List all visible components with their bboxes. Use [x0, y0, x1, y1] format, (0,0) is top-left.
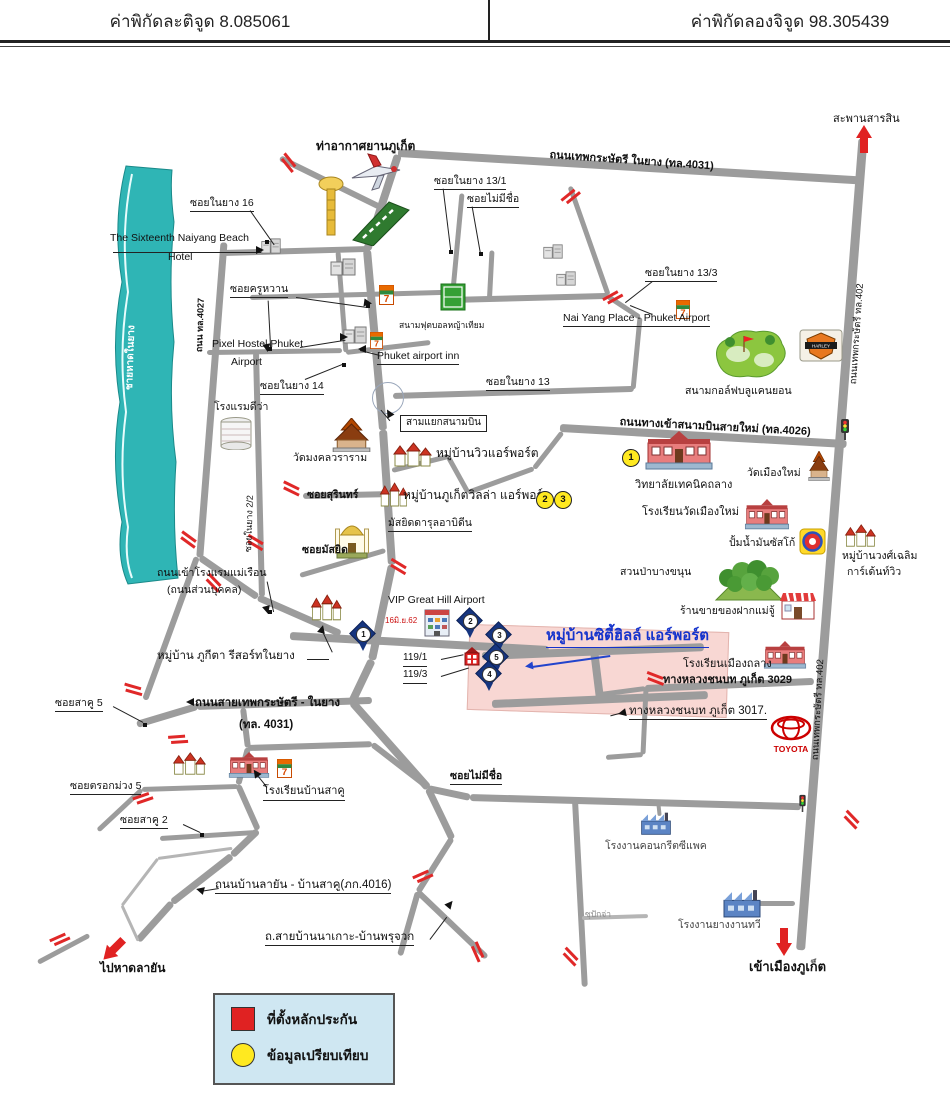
- leader-line: [441, 654, 464, 660]
- road-3017: ทางหลวงชนบท ภูเก็ต 3017.: [629, 704, 767, 720]
- muban-phuket-villa-airport: หมู่บ้านภูเก็ตวิลล่า แอร์พอร์ต: [403, 488, 551, 503]
- coordinate-header: ค่าพิกัดละติจูด 8.085061 ค่าพิกัดลองจิจู…: [0, 0, 950, 46]
- golf-course-icon: [708, 324, 792, 384]
- comparison-data-icon: [231, 1043, 255, 1067]
- muban-city-hill-airport: หมู่บ้านซิตี้ฮิลล์ แอร์พอร์ต: [546, 627, 709, 648]
- svg-text:7: 7: [282, 767, 288, 778]
- toyota-logo-icon: TOYOTA: [770, 715, 812, 755]
- airport-name: ท่าอากาศยานภูเก็ต: [316, 139, 415, 154]
- junction-dot: [449, 250, 453, 254]
- control-tower-icon: [318, 176, 344, 238]
- road-segment: [160, 830, 255, 841]
- vip-great-hill-icon: [422, 606, 452, 638]
- school-ban-saku: โรงเรียนบ้านสาคู: [263, 785, 345, 801]
- phukita-houses-icon: [310, 593, 342, 623]
- soi-kru-waan: ซอยครูหวาน: [230, 283, 288, 298]
- naiyang-place: Nai Yang Place - Phuket Airport: [563, 312, 710, 327]
- seven-eleven-icon: 7: [277, 759, 292, 778]
- road-segment: [142, 783, 238, 791]
- cpac-concrete-factory: โรงงานคอนกรีตซีแพค: [605, 840, 707, 853]
- su-pak-ja: ซุปักจ่า: [585, 909, 611, 920]
- souvenir-shop-icon: [779, 589, 817, 622]
- arrowhead: [524, 661, 533, 670]
- legend-collateral-label: ที่ตั้งหลักประกัน: [267, 1008, 357, 1030]
- railway-crossing-icon: [560, 946, 579, 968]
- site-pin-3: 3: [487, 623, 511, 647]
- site-pin-4: 4: [477, 662, 501, 686]
- svg-text:TOYOTA: TOYOTA: [774, 744, 809, 754]
- leader-line: [307, 659, 329, 660]
- naiyang-beach: ชายหาดในยาง: [124, 325, 139, 390]
- cpac-factory-icon: [640, 811, 672, 836]
- road-segment: [196, 242, 227, 558]
- soi-naiyang-2-2: ซอยในยาง 2/2: [243, 495, 256, 552]
- arrowhead: [186, 698, 194, 706]
- leader-line: [442, 189, 451, 251]
- susco-gas-station: ปั้มน้ำมันซัสโก้: [729, 537, 795, 550]
- soi-naiyang-14: ซอยในยาง 14: [260, 380, 324, 395]
- soi-surin: ซอยสุรินทร์: [307, 489, 358, 502]
- soi-saku-5: ซอยสาคู 5: [55, 697, 103, 712]
- soi-naiyang-16: ซอยในยาง 16: [190, 197, 254, 212]
- railway-crossing-icon: [167, 729, 188, 752]
- building-cluster-icon: [556, 271, 576, 286]
- svg-text:7: 7: [384, 294, 390, 305]
- road-4031-west-2: (ทล. 4031): [239, 718, 293, 732]
- soi-trok-muang-5: ซอยตรอกม่วง 5: [70, 780, 141, 795]
- leader-line: [625, 281, 653, 303]
- muban-wong-chaloem-2: การ์เด้นท์วิว: [847, 566, 901, 579]
- railway-crossing-icon: [647, 669, 663, 688]
- road-segment: [487, 250, 495, 300]
- red-date-note: 16มิ.ย.62: [385, 616, 417, 626]
- susco-logo-icon: [799, 528, 826, 555]
- soi-naiyang-13: ซอยในยาง 13: [486, 376, 550, 391]
- leader-line: [113, 706, 144, 723]
- leader-line: [300, 340, 346, 348]
- house-no-119-1: 119/1: [403, 652, 427, 667]
- road-segment: [135, 900, 174, 943]
- road-segment: [452, 293, 608, 303]
- railway-crossing-icon: [284, 480, 298, 498]
- vip-great-hill-airport: VIP Great Hill Airport: [388, 594, 485, 607]
- building-cluster-icon: [330, 258, 356, 276]
- mae-ruen-road-2: (ถนนส่วนบุคคล): [167, 584, 241, 597]
- comparison-marker-2: 2: [536, 491, 554, 509]
- school-wat-muang-mai: โรงเรียนวัดเมืองใหม่: [642, 506, 739, 520]
- thalang-technical-college: วิทยาลัยเทคนิคถลาง: [635, 479, 732, 493]
- muban-phukita-resort: หมู่บ้าน ภูกีตา รีสอร์ทในยาง: [157, 649, 295, 663]
- road-402-lower: ถนนเทพกระษัตรี ทล.402: [810, 659, 827, 761]
- header-rule-thick: [0, 40, 950, 43]
- arrowhead: [195, 885, 205, 895]
- road-segment: [121, 857, 159, 906]
- soi-masjid: ซอยมัสยิด: [302, 544, 348, 557]
- junction-dot: [200, 833, 204, 837]
- road-segment: [368, 564, 396, 661]
- leader-line: [429, 917, 447, 940]
- house-no-119-3: 119/3: [403, 669, 427, 684]
- wat-muang-mai: วัดเมืองใหม่: [747, 467, 801, 480]
- leader-line: [441, 668, 469, 678]
- seven-eleven-icon: 7: [370, 332, 383, 349]
- road-segment: [121, 904, 140, 941]
- to-phuket-town: เข้าเมืองภูเก็ต: [749, 959, 826, 975]
- masjid-darul-abidin: มัสยิดดารุลอาบิดีน: [388, 517, 472, 532]
- muban-view-airport: หมู่บ้านวิวแอร์พอร์ต: [436, 446, 539, 461]
- road-4031-west-1: ถนนสายเทพกระษัตรี - ในยาง: [195, 696, 340, 710]
- ban-saku-school-icon: [228, 752, 270, 780]
- road-segment: [158, 846, 233, 859]
- football-field: สนามฟุตบอลหญ้าเทียม: [399, 320, 484, 331]
- road-segment: [397, 891, 421, 956]
- runway-icon: [345, 198, 415, 246]
- road-ban-layan-saku-4016: ถนนบ้านลายัน - บ้านสาคู(ภก.4016): [215, 878, 391, 894]
- railway-crossing-icon: [841, 809, 860, 831]
- leader-line: [305, 363, 344, 380]
- arrow-to-phuket-town: [776, 926, 792, 956]
- longitude-value: ค่าพิกัดลองจิจูด 98.305439: [645, 8, 935, 35]
- svg-text:7: 7: [374, 339, 379, 349]
- leader-line: [296, 297, 367, 308]
- wong-chaloem-houses-icon: [844, 523, 876, 549]
- legend-box: ที่ตั้งหลักประกัน ข้อมูลเปรียบเทียบ: [213, 993, 395, 1085]
- ngan-thawee-rubber-factory: โรงงานยางงานทวี: [678, 919, 761, 932]
- railway-crossing-icon: [125, 680, 142, 700]
- comparison-marker-3: 3: [554, 491, 572, 509]
- wat-mongkhol-icon: [323, 418, 380, 452]
- sixteenth-hotel-1: The Sixteenth Naiyang Beach: [110, 232, 249, 245]
- site-pin-2: 2: [458, 609, 482, 633]
- soi-no-name-south: ซอยไม่มีชื่อ: [450, 770, 502, 785]
- pixel-hostel-1: Pixel Hostel Phuket: [212, 338, 303, 351]
- airport-junction: สามแยกสนามบิน: [400, 415, 487, 432]
- pixel-hostel-2: Airport: [231, 356, 262, 369]
- road-segment: [470, 794, 801, 810]
- road-segment: [224, 246, 368, 256]
- traffic-light-icon: [797, 794, 808, 812]
- comparison-marker-1: 1: [622, 449, 640, 467]
- bang-khanun-forest-park: สวนป่าบางขนุน: [620, 566, 691, 579]
- forest-park-icon: [710, 556, 788, 603]
- football-field-icon: [440, 283, 466, 311]
- arrowhead: [358, 345, 366, 353]
- wat-mongkhol-wararam: วัดมงคลวราราม: [293, 452, 367, 465]
- junction-dot: [143, 723, 147, 727]
- leader-line: [183, 824, 201, 833]
- junction-dot: [479, 252, 483, 256]
- road-segment: [631, 317, 643, 389]
- blue-canyon-golf: สนามกอล์ฟบลูแคนยอน: [685, 385, 792, 398]
- soi-saku-2: ซอยสาคู 2: [120, 814, 168, 829]
- arrowhead: [256, 246, 264, 254]
- legend-comparison-label: ข้อมูลเปรียบเทียบ: [267, 1044, 368, 1066]
- railway-crossing-icon: [390, 557, 406, 576]
- arrowhead: [363, 298, 372, 307]
- road-segment: [248, 741, 372, 751]
- arrowhead: [617, 708, 626, 717]
- header-rule-thin: [0, 46, 950, 47]
- airplane-icon: [348, 150, 403, 195]
- phuket-airport-inn: Phuket airport inn: [377, 350, 459, 365]
- site-pin-1: 1: [351, 622, 375, 646]
- road-4027: ถนน ทล.4027: [194, 298, 207, 353]
- thalang-college-icon: [644, 431, 714, 473]
- arrowhead: [444, 898, 455, 909]
- collateral-location-icon: [231, 1007, 255, 1031]
- soi-naiyang-13-1: ซอยในยาง 13/1: [434, 175, 506, 190]
- header-divider: [488, 0, 490, 40]
- junction-dot: [342, 363, 346, 367]
- road-ban-na-ko: ถ.สายบ้านนาเกาะ-บ้านพรุจวก: [265, 930, 414, 946]
- naiyang-beach-icon: [98, 162, 183, 587]
- junction-dot: [265, 240, 269, 244]
- railway-crossing-icon: [180, 530, 197, 550]
- arrowhead: [340, 333, 348, 341]
- road-3029: ทางหลวงชนบท ภูเก็ต 3029: [663, 674, 792, 688]
- view-airport-houses-icon: [392, 441, 432, 469]
- svg-text:HARLEY: HARLEY: [812, 344, 830, 349]
- dewa-hotel: โรงแรมดีว่า: [214, 401, 268, 414]
- wat-muang-mai-school-icon: [744, 499, 790, 532]
- arrowhead: [317, 624, 327, 634]
- saku-houses-icon: [172, 751, 206, 777]
- latitude-value: ค่าพิกัดละติจูด 8.085061: [55, 8, 345, 35]
- seven-eleven-icon: 7: [379, 285, 394, 305]
- arrow-to-sarasin-bridge: [856, 125, 872, 155]
- soi-no-name-north: ซอยไม่มีชื่อ: [467, 193, 519, 208]
- soi-naiyang-13-3: ซอยในยาง 13/3: [645, 267, 717, 282]
- muban-wong-chaloem-1: หมู่บ้านวงศ์เฉลิม: [842, 550, 917, 563]
- wat-muang-mai-icon: [803, 451, 835, 481]
- mae-ruen-road-1: ถนนเข้าโรงแรมแม่เรือน: [157, 567, 267, 580]
- mae-ju-souvenir-shop: ร้านขายของฝากแม่จู้: [680, 605, 775, 618]
- school-muang-thalang: โรงเรียนเมืองถลาง: [683, 658, 772, 672]
- leader-line: [471, 207, 481, 254]
- harley-davidson-icon: HARLEY: [799, 329, 843, 362]
- thawee-factory-icon: [722, 888, 762, 919]
- appraisal-map-page: ค่าพิกัดละติจูด 8.085061 ค่าพิกัดลองจิจู…: [0, 0, 950, 1096]
- road-segment: [235, 784, 260, 831]
- sixteenth-hotel-2: Hotel: [168, 251, 193, 264]
- building-cluster-icon: [543, 244, 563, 259]
- dewa-hotel-icon: [216, 416, 256, 450]
- road-segment: [606, 752, 643, 760]
- road-segment: [757, 901, 795, 906]
- traffic-light-icon: [838, 418, 852, 440]
